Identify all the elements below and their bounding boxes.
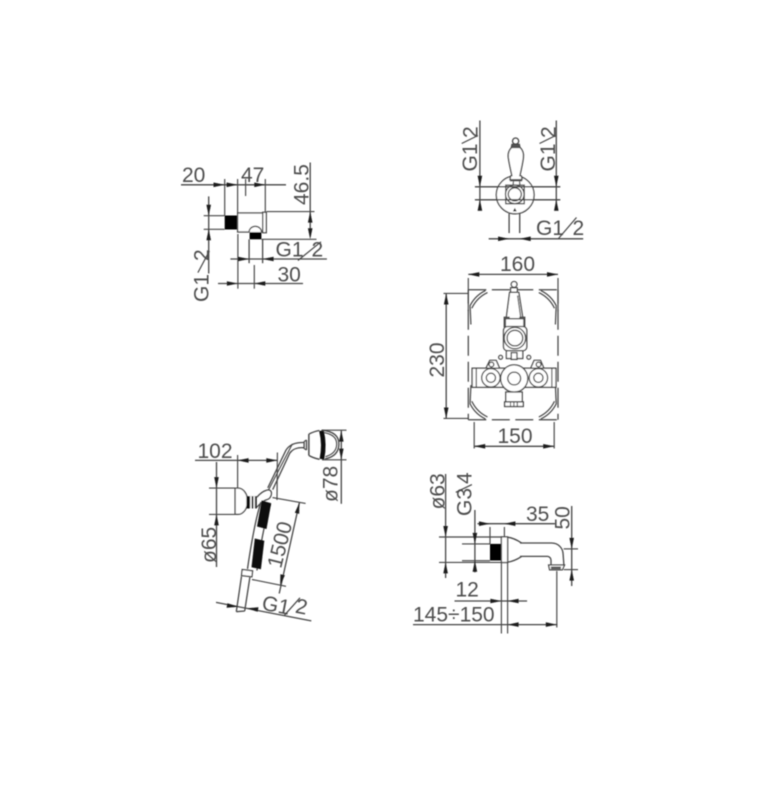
svg-text:G1: G1 <box>260 592 292 620</box>
svg-text:160: 160 <box>500 253 535 276</box>
svg-text:102: 102 <box>198 440 233 463</box>
svg-text:2: 2 <box>294 595 310 620</box>
svg-text:2: 2 <box>312 239 324 262</box>
svg-text:2: 2 <box>460 126 483 138</box>
svg-text:12: 12 <box>456 579 479 602</box>
svg-text:G1: G1 <box>276 239 304 262</box>
svg-text:230: 230 <box>426 342 449 377</box>
svg-text:G1: G1 <box>191 274 214 302</box>
svg-text:2: 2 <box>538 126 561 138</box>
svg-text:1500: 1500 <box>264 519 298 570</box>
svg-text:150: 150 <box>498 425 533 448</box>
svg-text:20: 20 <box>182 164 205 187</box>
svg-text:ø78: ø78 <box>320 466 343 502</box>
svg-text:G1: G1 <box>537 143 560 171</box>
svg-text:30: 30 <box>278 264 301 287</box>
svg-text:2: 2 <box>573 217 585 240</box>
svg-text:4: 4 <box>454 472 477 484</box>
svg-text:ø65: ø65 <box>198 527 221 563</box>
svg-text:145÷150: 145÷150 <box>413 604 495 627</box>
svg-text:35: 35 <box>526 503 549 526</box>
svg-text:46.5: 46.5 <box>291 164 314 205</box>
svg-text:47: 47 <box>241 164 264 187</box>
svg-text:2: 2 <box>191 249 214 261</box>
svg-text:G1: G1 <box>459 143 482 171</box>
